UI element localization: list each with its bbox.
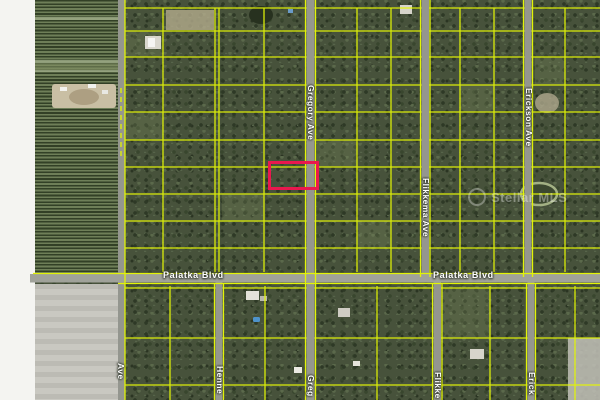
street-label-erickson-ave: Erickson Ave: [524, 88, 534, 147]
street-label-left-ave-cut: Ave: [116, 363, 126, 380]
map-graphics-overlay: [0, 0, 600, 400]
parcel-tone-variations: [124, 31, 565, 338]
street-label-palatka-blvd-west: Palatka Blvd: [163, 270, 224, 280]
street-label-gregory-ave-cut: Greg: [306, 375, 316, 397]
satellite-map[interactable]: Gregory Ave Flikkema Ave Erickson Ave Pa…: [0, 0, 600, 400]
street-label-flikkema-ave-cut: Flikke: [433, 372, 443, 399]
street-label-henne-ave-cut: Henne: [215, 366, 225, 394]
street-label-flikkema-ave: Flikkema Ave: [421, 178, 431, 237]
terrain-details: [52, 5, 600, 400]
street-label-erickson-ave-cut: Erick: [527, 372, 537, 395]
road-left-ave: [118, 0, 125, 400]
street-label-palatka-blvd-east: Palatka Blvd: [433, 270, 494, 280]
street-label-gregory-ave: Gregory Ave: [306, 85, 316, 140]
road-gregory-ave: [307, 0, 315, 400]
